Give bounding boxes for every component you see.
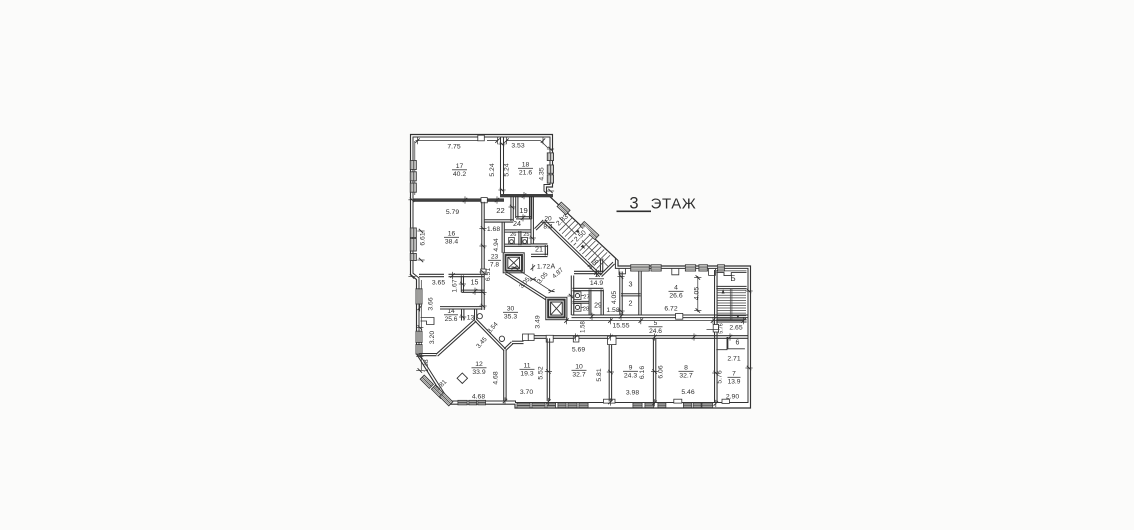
svg-text:3.49: 3.49 xyxy=(535,315,542,328)
svg-text:5.76: 5.76 xyxy=(717,370,724,383)
svg-text:26: 26 xyxy=(510,232,516,238)
svg-text:23: 23 xyxy=(491,254,499,261)
svg-text:1.58: 1.58 xyxy=(581,321,587,333)
svg-text:6.72: 6.72 xyxy=(664,306,677,313)
svg-text:5.81: 5.81 xyxy=(596,368,603,381)
svg-text:3.65: 3.65 xyxy=(432,280,445,287)
svg-text:13.9: 13.9 xyxy=(728,379,741,386)
svg-text:20: 20 xyxy=(544,216,552,223)
svg-text:2.90: 2.90 xyxy=(726,394,739,401)
svg-text:7.75: 7.75 xyxy=(447,144,460,151)
svg-text:Б: Б xyxy=(730,274,735,283)
svg-text:19: 19 xyxy=(519,206,527,215)
svg-text:3.20: 3.20 xyxy=(429,331,436,344)
svg-text:1.72: 1.72 xyxy=(537,263,550,270)
svg-text:5.24: 5.24 xyxy=(504,163,511,176)
svg-text:3: 3 xyxy=(629,194,638,212)
svg-text:24.3: 24.3 xyxy=(624,373,637,380)
svg-text:4.35: 4.35 xyxy=(539,167,546,180)
svg-text:3: 3 xyxy=(629,280,633,289)
svg-text:6: 6 xyxy=(736,340,740,347)
svg-text:6.16: 6.16 xyxy=(639,366,646,379)
svg-text:2.65: 2.65 xyxy=(729,325,742,332)
svg-text:4.05: 4.05 xyxy=(611,291,618,304)
svg-text:19.3: 19.3 xyxy=(520,371,533,378)
svg-text:40.2: 40.2 xyxy=(453,171,466,178)
svg-text:5.52: 5.52 xyxy=(538,366,545,379)
svg-text:18: 18 xyxy=(522,162,530,169)
svg-text:1.68: 1.68 xyxy=(487,226,500,233)
svg-text:4.94: 4.94 xyxy=(493,238,500,251)
svg-text:8: 8 xyxy=(684,365,688,372)
svg-text:7: 7 xyxy=(732,371,736,378)
svg-text:6.61: 6.61 xyxy=(420,232,427,245)
svg-text:5.79: 5.79 xyxy=(446,209,459,216)
svg-text:2: 2 xyxy=(629,299,633,308)
svg-text:3.98: 3.98 xyxy=(626,390,639,397)
svg-text:1.67: 1.67 xyxy=(452,279,459,292)
svg-text:ЭТАЖ: ЭТАЖ xyxy=(651,196,697,213)
svg-text:2.71: 2.71 xyxy=(727,356,740,363)
svg-text:24: 24 xyxy=(513,219,521,228)
svg-text:А: А xyxy=(550,263,555,270)
svg-text:17: 17 xyxy=(456,163,464,170)
svg-text:6.51: 6.51 xyxy=(485,268,492,281)
svg-text:4.68: 4.68 xyxy=(472,394,485,401)
svg-text:38.4: 38.4 xyxy=(445,239,458,246)
svg-text:21.6: 21.6 xyxy=(519,170,532,177)
svg-text:1: 1 xyxy=(595,272,599,279)
svg-text:5.46: 5.46 xyxy=(681,389,694,396)
svg-text:4: 4 xyxy=(674,285,678,292)
svg-text:15: 15 xyxy=(471,280,479,287)
svg-text:3.53: 3.53 xyxy=(511,143,524,150)
svg-text:26.6: 26.6 xyxy=(669,293,682,300)
svg-text:3.66: 3.66 xyxy=(428,297,435,310)
svg-text:3.70: 3.70 xyxy=(520,389,533,396)
svg-text:5.69: 5.69 xyxy=(572,347,585,354)
svg-text:15.55: 15.55 xyxy=(612,323,629,330)
svg-text:33.9: 33.9 xyxy=(472,369,485,376)
svg-text:11: 11 xyxy=(523,363,530,370)
svg-text:32.7: 32.7 xyxy=(572,372,585,379)
svg-text:5.76: 5.76 xyxy=(718,323,724,334)
svg-text:6.06: 6.06 xyxy=(658,365,665,378)
svg-text:5.24: 5.24 xyxy=(489,163,496,176)
svg-text:9: 9 xyxy=(629,365,633,372)
svg-text:27: 27 xyxy=(583,295,589,301)
svg-text:10: 10 xyxy=(575,364,583,371)
svg-text:24.6: 24.6 xyxy=(649,328,662,335)
svg-text:25: 25 xyxy=(523,232,529,238)
svg-text:8.4: 8.4 xyxy=(543,224,552,231)
svg-text:21: 21 xyxy=(535,244,543,253)
svg-text:1.38: 1.38 xyxy=(423,359,430,372)
svg-text:12: 12 xyxy=(475,361,483,368)
svg-text:35.3: 35.3 xyxy=(504,314,517,321)
svg-text:4.05: 4.05 xyxy=(694,287,701,300)
svg-text:5: 5 xyxy=(654,320,658,327)
svg-text:13: 13 xyxy=(467,315,475,322)
svg-text:14: 14 xyxy=(447,308,455,315)
svg-text:1.58: 1.58 xyxy=(606,307,619,314)
svg-text:32.7: 32.7 xyxy=(679,373,692,380)
svg-text:29: 29 xyxy=(594,303,602,310)
svg-text:4.68: 4.68 xyxy=(493,371,500,384)
svg-text:16: 16 xyxy=(448,231,456,238)
svg-text:30: 30 xyxy=(507,306,515,313)
svg-text:25.6: 25.6 xyxy=(445,316,458,323)
svg-text:28: 28 xyxy=(583,307,589,313)
svg-text:14.9: 14.9 xyxy=(590,280,603,287)
svg-text:7.8: 7.8 xyxy=(490,262,499,269)
svg-text:22: 22 xyxy=(496,206,504,215)
